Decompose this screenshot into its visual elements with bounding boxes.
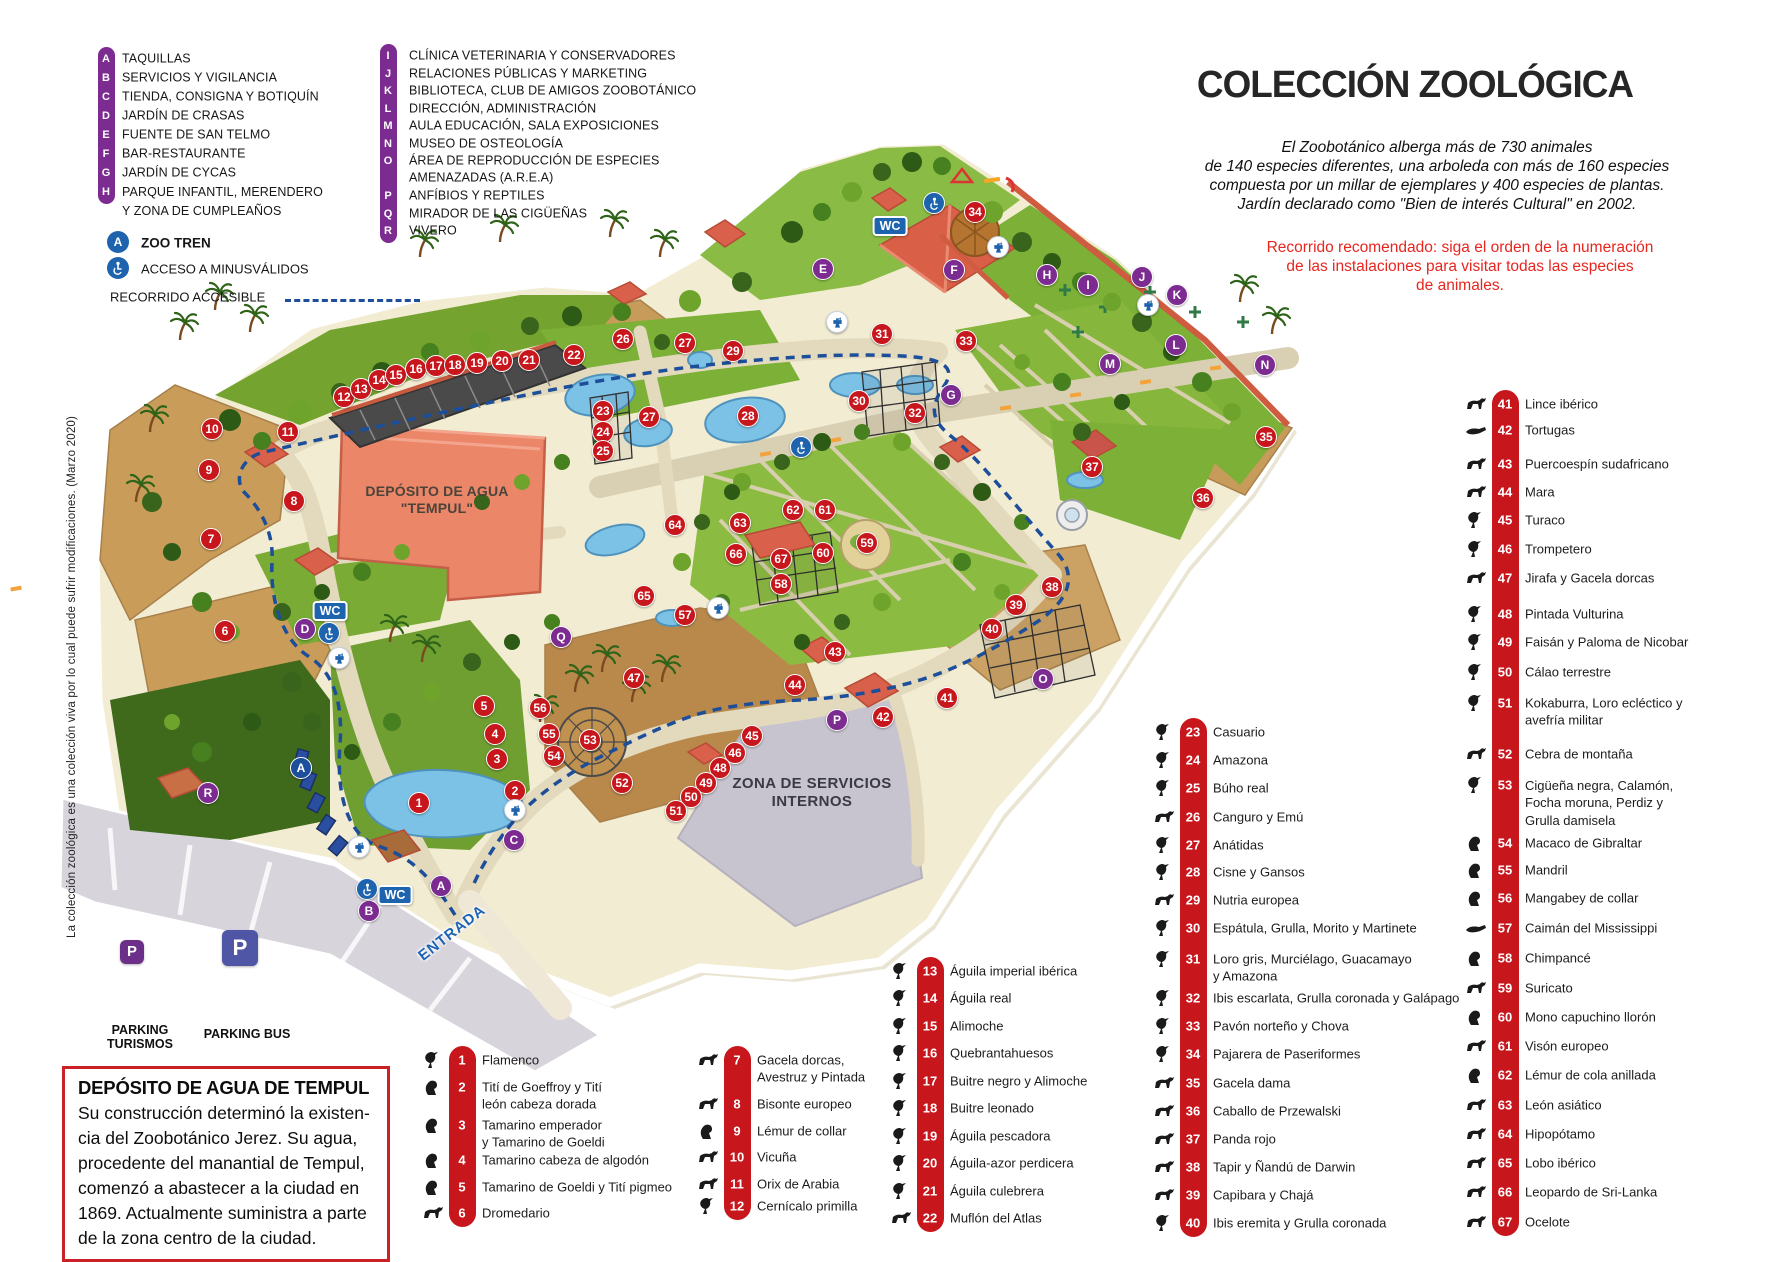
species-label-37: Panda rojo (1213, 1130, 1276, 1148)
primate-silhouette-icon (422, 1150, 444, 1170)
map-marker-54: 54 (543, 745, 565, 767)
wheelchair-icon (356, 878, 378, 900)
species-label-46: Trompetero (1525, 540, 1592, 558)
map-marker-40: 40 (981, 618, 1003, 640)
legend-letter-B: B (98, 72, 115, 84)
species-number-5: 5 (449, 1180, 476, 1195)
mammal-silhouette-icon (1465, 1153, 1487, 1173)
species-number-51: 51 (1492, 696, 1519, 711)
species-number-2: 2 (449, 1080, 476, 1095)
route-note-line: Recorrido recomendado: siga el orden de … (1180, 238, 1740, 257)
mammal-silhouette-icon (1465, 394, 1487, 414)
mammal-silhouette-icon (1465, 744, 1487, 764)
map-marker-23: 23 (592, 400, 614, 422)
bird-silhouette-icon (1153, 1016, 1175, 1036)
mammal-silhouette-icon (1153, 890, 1175, 910)
water-faucet-icon (328, 647, 350, 669)
bird-silhouette-icon (1153, 918, 1175, 938)
route-note-line: de animales. (1180, 276, 1740, 295)
species-label-17: Buitre negro y Alimoche (950, 1072, 1087, 1090)
species-label-62: Lémur de cola anillada (1525, 1066, 1656, 1084)
map-marker-56: 56 (529, 697, 551, 719)
map-marker-34: 34 (964, 201, 986, 223)
species-number-8: 8 (724, 1097, 751, 1112)
map-marker-33: 33 (955, 330, 977, 352)
map-marker-15: 15 (385, 364, 407, 386)
bird-silhouette-icon (1465, 510, 1487, 530)
map-letter-B: B (358, 900, 380, 922)
bird-silhouette-icon (1465, 662, 1487, 682)
species-number-38: 38 (1180, 1160, 1207, 1175)
bird-silhouette-icon (1465, 693, 1487, 713)
species-label-6: Dromedario (482, 1204, 550, 1222)
map-marker-9: 9 (198, 459, 220, 481)
species-number-15: 15 (917, 1019, 944, 1034)
legend-item-C: TIENDA, CONSIGNA Y BOTIQUÍN (122, 88, 319, 107)
species-number-50: 50 (1492, 665, 1519, 680)
wc-badge: WC (873, 216, 908, 236)
species-number-29: 29 (1180, 893, 1207, 908)
species-number-47: 47 (1492, 571, 1519, 586)
primate-silhouette-icon (697, 1121, 719, 1141)
map-marker-65: 65 (633, 585, 655, 607)
primate-silhouette-icon (1465, 860, 1487, 880)
species-number-67: 67 (1492, 1215, 1519, 1230)
mammal-silhouette-icon (1153, 1157, 1175, 1177)
species-label-20: Águila-azor perdicera (950, 1154, 1074, 1172)
species-number-18: 18 (917, 1101, 944, 1116)
species-label-38: Tapir y Ñandú de Darwin (1213, 1158, 1355, 1176)
legend-item-M: AULA EDUCACIÓN, SALA EXPOSICIONES (409, 117, 659, 135)
species-label-25: Búho real (1213, 779, 1269, 797)
map-letter-P: P (826, 709, 848, 731)
species-label-54: Macaco de Gibraltar (1525, 834, 1642, 852)
species-label-10: Vicuña (757, 1148, 797, 1166)
species-number-36: 36 (1180, 1104, 1207, 1119)
map-marker-51: 51 (665, 800, 687, 822)
species-label-7: Gacela dorcas, Avestruz y Pintada (757, 1051, 865, 1086)
bird-silhouette-icon (890, 1098, 912, 1118)
water-faucet-icon (504, 799, 526, 821)
map-letter-F: F (943, 259, 965, 281)
species-number-46: 46 (1492, 542, 1519, 557)
map-letter-C: C (503, 829, 525, 851)
mammal-silhouette-icon (1153, 807, 1175, 827)
recorrido-label: RECORRIDO ACCESIBLE (110, 290, 265, 305)
mammal-silhouette-icon (1153, 1073, 1175, 1093)
species-number-20: 20 (917, 1156, 944, 1171)
bird-silhouette-icon (1465, 604, 1487, 624)
map-marker-62: 62 (782, 499, 804, 521)
species-label-16: Quebrantahuesos (950, 1044, 1053, 1062)
map-letter-O: O (1032, 668, 1054, 690)
bird-silhouette-icon (1153, 1213, 1175, 1233)
species-number-58: 58 (1492, 951, 1519, 966)
species-label-24: Amazona (1213, 751, 1268, 769)
species-number-9: 9 (724, 1124, 751, 1139)
species-number-6: 6 (449, 1206, 476, 1221)
map-marker-42: 42 (872, 706, 894, 728)
map-letter-D: D (294, 618, 316, 640)
species-bar-1 (449, 1046, 476, 1227)
acceso-label: ACCESO A MINUSVÁLIDOS (141, 262, 309, 277)
legend-letter-L: L (380, 103, 397, 115)
legend-item-K: BIBLIOTECA, CLUB DE AMIGOS ZOOBOTÁNICO (409, 82, 696, 100)
legend-letter-G: G (98, 167, 115, 179)
route-dash-sample (285, 299, 420, 302)
species-label-2: Tití de Goeffroy y Tití león cabeza dora… (482, 1078, 602, 1113)
mammal-silhouette-icon (1465, 978, 1487, 998)
wheelchair-icon (923, 192, 945, 214)
bird-silhouette-icon (890, 1071, 912, 1091)
bird-silhouette-icon (1153, 722, 1175, 742)
mammal-silhouette-icon (1465, 568, 1487, 588)
legend-letter-F: F (98, 148, 115, 160)
species-label-66: Leopardo de Sri-Lanka (1525, 1183, 1657, 1201)
zona-servicios-label: ZONA DE SERVICIOS INTERNOS (732, 775, 891, 811)
species-number-12: 12 (724, 1199, 751, 1214)
bird-silhouette-icon (890, 1153, 912, 1173)
species-label-14: Águila real (950, 989, 1011, 1007)
bird-silhouette-icon (890, 1043, 912, 1063)
zoo-tren-badge: A (107, 231, 129, 253)
species-number-42: 42 (1492, 423, 1519, 438)
parking-turismos-label: PARKING TURISMOS (107, 1023, 173, 1051)
legend-letter-K: K (380, 85, 397, 97)
bird-silhouette-icon (1153, 835, 1175, 855)
species-label-47: Jirafa y Gacela dorcas (1525, 569, 1654, 587)
map-letter-Q: Q (550, 626, 572, 648)
mammal-silhouette-icon (697, 1094, 719, 1114)
mammal-silhouette-icon (1153, 1129, 1175, 1149)
map-marker-16: 16 (405, 358, 427, 380)
map-letter-J: J (1131, 266, 1153, 288)
map-marker-38: 38 (1041, 576, 1063, 598)
legend-item-O: ÁREA DE REPRODUCCIÓN DE ESPECIES AMENAZA… (409, 152, 659, 187)
species-label-56: Mangabey de collar (1525, 889, 1638, 907)
species-label-28: Cisne y Gansos (1213, 863, 1305, 881)
mammal-silhouette-icon (1465, 454, 1487, 474)
species-number-27: 27 (1180, 838, 1207, 853)
water-faucet-icon (348, 836, 370, 858)
species-label-55: Mandril (1525, 861, 1568, 879)
route-note: Recorrido recomendado: siga el orden de … (1180, 238, 1740, 295)
species-label-19: Águila pescadora (950, 1127, 1050, 1145)
species-number-56: 56 (1492, 891, 1519, 906)
species-number-55: 55 (1492, 863, 1519, 878)
species-number-24: 24 (1180, 753, 1207, 768)
species-number-35: 35 (1180, 1076, 1207, 1091)
species-number-3: 3 (449, 1118, 476, 1133)
poster: TAQUILLASSERVICIOS Y VIGILANCIATIENDA, C… (0, 0, 1790, 1259)
primate-silhouette-icon (422, 1177, 444, 1197)
map-marker-47: 47 (623, 667, 645, 689)
map-marker-66: 66 (725, 543, 747, 565)
map-marker-19: 19 (466, 352, 488, 374)
map-marker-35: 35 (1255, 426, 1277, 448)
water-faucet-icon (987, 236, 1009, 258)
species-number-34: 34 (1180, 1047, 1207, 1062)
legend-letter-H: H (98, 186, 115, 198)
intro-text: El Zoobotánico alberga más de 730 animal… (1157, 138, 1717, 214)
map-marker-37: 37 (1081, 456, 1103, 478)
deposito-label: DEPÓSITO DE AGUA "TEMPUL" (365, 483, 508, 517)
map-marker-27: 27 (638, 406, 660, 428)
map-letter-N: N (1254, 354, 1276, 376)
species-number-65: 65 (1492, 1156, 1519, 1171)
legend-item-R: VIVERO (409, 222, 457, 240)
map-marker-3: 3 (486, 748, 508, 770)
species-label-15: Alimoche (950, 1017, 1003, 1035)
map-letter-M: M (1099, 353, 1121, 375)
species-label-11: Orix de Arabia (757, 1175, 839, 1193)
species-label-9: Lémur de collar (757, 1122, 847, 1140)
species-label-59: Suricato (1525, 979, 1573, 997)
species-label-39: Capibara y Chajá (1213, 1186, 1313, 1204)
species-label-40: Ibis eremita y Grulla coronada (1213, 1214, 1386, 1232)
map-marker-28: 28 (737, 405, 759, 427)
map-marker-60: 60 (812, 542, 834, 564)
species-number-26: 26 (1180, 810, 1207, 825)
species-label-64: Hipopótamo (1525, 1125, 1595, 1143)
species-number-57: 57 (1492, 921, 1519, 936)
legend-item-J: RELACIONES PÚBLICAS Y MARKETING (409, 65, 647, 83)
species-number-44: 44 (1492, 485, 1519, 500)
map-marker-27: 27 (674, 332, 696, 354)
species-label-60: Mono capuchino llorón (1525, 1008, 1656, 1026)
species-label-8: Bisonte europeo (757, 1095, 852, 1113)
mammal-silhouette-icon (1153, 1101, 1175, 1121)
reptile-silhouette-icon (1465, 420, 1487, 440)
species-number-43: 43 (1492, 457, 1519, 472)
species-number-54: 54 (1492, 836, 1519, 851)
legend-item-F: BAR-RESTAURANTE (122, 145, 246, 164)
tempul-info-box: DEPÓSITO DE AGUA DE TEMPUL Su construcci… (62, 1066, 390, 1262)
species-label-65: Lobo ibérico (1525, 1154, 1596, 1172)
map-marker-44: 44 (784, 674, 806, 696)
map-letter-I: I (1077, 274, 1099, 296)
legend-item-E: FUENTE DE SAN TELMO (122, 126, 270, 145)
map-marker-45: 45 (741, 725, 763, 747)
map-marker-61: 61 (814, 499, 836, 521)
legend-item-Q: MIRADOR DE LAS CIGÜEÑAS (409, 205, 587, 223)
parking-icon: P (120, 940, 144, 964)
species-number-52: 52 (1492, 747, 1519, 762)
legend-item-G: JARDÍN DE CYCAS (122, 164, 236, 183)
map-marker-67: 67 (770, 548, 792, 570)
map-marker-21: 21 (518, 349, 540, 371)
map-marker-18: 18 (444, 354, 466, 376)
species-label-22: Muflón del Atlas (950, 1209, 1042, 1227)
wheelchair-icon (107, 257, 129, 279)
intro-line: de 140 especies diferentes, una arboleda… (1157, 157, 1717, 176)
species-label-57: Caimán del Mississippi (1525, 919, 1657, 937)
bird-silhouette-icon (422, 1050, 444, 1070)
bird-silhouette-icon (697, 1196, 719, 1216)
legend-letter-A: A (98, 53, 115, 65)
map-marker-43: 43 (824, 641, 846, 663)
mammal-silhouette-icon (1465, 1182, 1487, 1202)
species-number-11: 11 (724, 1177, 751, 1192)
species-label-43: Puercoespín sudafricano (1525, 455, 1669, 473)
water-faucet-icon (707, 597, 729, 619)
bird-silhouette-icon (1153, 949, 1175, 969)
species-number-30: 30 (1180, 921, 1207, 936)
species-number-64: 64 (1492, 1127, 1519, 1142)
map-marker-29: 29 (722, 340, 744, 362)
primate-silhouette-icon (1465, 948, 1487, 968)
water-faucet-icon (826, 311, 848, 333)
species-label-31: Loro gris, Murciélago, Guacamayo y Amazo… (1213, 950, 1412, 985)
primate-silhouette-icon (422, 1115, 444, 1135)
map-marker-31: 31 (871, 323, 893, 345)
map-marker-63: 63 (729, 512, 751, 534)
species-number-31: 31 (1180, 952, 1207, 967)
map-marker-52: 52 (611, 772, 633, 794)
bird-silhouette-icon (1153, 778, 1175, 798)
bird-silhouette-icon (890, 1016, 912, 1036)
species-label-4: Tamarino cabeza de algodón (482, 1151, 649, 1169)
species-label-30: Espátula, Grulla, Morito y Martinete (1213, 919, 1417, 937)
species-number-19: 19 (917, 1129, 944, 1144)
water-faucet-icon (1137, 294, 1159, 316)
species-label-41: Lince ibérico (1525, 395, 1598, 413)
map-marker-41: 41 (936, 687, 958, 709)
mammal-silhouette-icon (1465, 1095, 1487, 1115)
wc-badge: WC (378, 885, 413, 905)
legend-item-L: DIRECCIÓN, ADMINISTRACIÓN (409, 100, 596, 118)
species-label-5: Tamarino de Goeldi y Tití pigmeo (482, 1178, 672, 1196)
species-number-40: 40 (1180, 1216, 1207, 1231)
map-marker-1: 1 (408, 792, 430, 814)
species-label-32: Ibis escarlata, Grulla coronada y Galápa… (1213, 989, 1459, 1007)
map-marker-6: 6 (214, 620, 236, 642)
legend-item-A: TAQUILLAS (122, 50, 191, 69)
species-label-36: Caballo de Przewalski (1213, 1102, 1341, 1120)
zoo-tren-label: ZOO TREN (141, 236, 211, 251)
legend-item-P: ANFÍBIOS Y REPTILES (409, 187, 545, 205)
species-number-13: 13 (917, 964, 944, 979)
species-number-60: 60 (1492, 1010, 1519, 1025)
tempul-info-title: DEPÓSITO DE AGUA DE TEMPUL (78, 1077, 374, 1099)
legend-letter-J: J (380, 68, 397, 80)
map-letter-R: R (197, 782, 219, 804)
mammal-silhouette-icon (1465, 482, 1487, 502)
bird-silhouette-icon (1465, 539, 1487, 559)
species-number-49: 49 (1492, 635, 1519, 650)
species-number-23: 23 (1180, 725, 1207, 740)
map-letter-K: K (1166, 284, 1188, 306)
species-label-67: Ocelote (1525, 1213, 1570, 1231)
map-marker-11: 11 (277, 421, 299, 443)
bird-silhouette-icon (1153, 750, 1175, 770)
mammal-silhouette-icon (1465, 1212, 1487, 1232)
tempul-info-body: Su construcción determinó la existen- ci… (78, 1101, 374, 1251)
map-letter-G: G (940, 384, 962, 406)
map-marker-32: 32 (904, 402, 926, 424)
species-number-66: 66 (1492, 1185, 1519, 1200)
mammal-silhouette-icon (422, 1203, 444, 1223)
map-letter-E: E (812, 258, 834, 280)
legend-letter-N: N (380, 138, 397, 150)
map-marker-64: 64 (664, 514, 686, 536)
species-number-45: 45 (1492, 513, 1519, 528)
legend-item-H: PARQUE INFANTIL, MERENDERO Y ZONA DE CUM… (122, 183, 323, 221)
species-number-62: 62 (1492, 1068, 1519, 1083)
species-label-23: Casuario (1213, 723, 1265, 741)
page-title: COLECCIÓN ZOOLÓGICA (1163, 64, 1667, 107)
map-letter-H: H (1036, 264, 1058, 286)
bird-silhouette-icon (890, 1181, 912, 1201)
mammal-silhouette-icon (697, 1174, 719, 1194)
legend-letter-M: M (380, 120, 397, 132)
map-marker-26: 26 (612, 328, 634, 350)
species-label-61: Visón europeo (1525, 1037, 1609, 1055)
legend-item-N: MUSEO DE OSTEOLOGÍA (409, 135, 563, 153)
map-marker-55: 55 (538, 723, 560, 745)
map-letter-A: A (430, 875, 452, 897)
map-marker-30: 30 (848, 390, 870, 412)
species-label-44: Mara (1525, 483, 1555, 501)
legend-letter-D: D (98, 110, 115, 122)
map-marker-57: 57 (674, 604, 696, 626)
species-number-59: 59 (1492, 981, 1519, 996)
bird-silhouette-icon (1465, 775, 1487, 795)
mammal-silhouette-icon (697, 1050, 719, 1070)
species-label-42: Tortugas (1525, 421, 1575, 439)
legend-letter-C: C (98, 91, 115, 103)
legend-letter-E: E (98, 129, 115, 141)
legend-item-B: SERVICIOS Y VIGILANCIA (122, 69, 277, 88)
species-label-3: Tamarino emperador y Tamarino de Goeldi (482, 1116, 605, 1151)
intro-line: El Zoobotánico alberga más de 730 animal… (1157, 138, 1717, 157)
primate-silhouette-icon (1465, 1065, 1487, 1085)
map-marker-25: 25 (592, 440, 614, 462)
species-number-33: 33 (1180, 1019, 1207, 1034)
species-label-49: Faisán y Paloma de Nicobar (1525, 633, 1688, 651)
species-number-14: 14 (917, 991, 944, 1006)
species-label-18: Buitre leonado (950, 1099, 1034, 1117)
mammal-silhouette-icon (1465, 1124, 1487, 1144)
mammal-silhouette-icon (890, 1208, 912, 1228)
legend-capsule-1 (98, 47, 115, 204)
bird-silhouette-icon (890, 988, 912, 1008)
map-marker-20: 20 (491, 350, 513, 372)
bird-silhouette-icon (1153, 862, 1175, 882)
species-number-1: 1 (449, 1053, 476, 1068)
species-number-4: 4 (449, 1153, 476, 1168)
parking-bus-label: PARKING BUS (204, 1027, 291, 1041)
species-label-27: Anátidas (1213, 836, 1264, 854)
species-number-28: 28 (1180, 865, 1207, 880)
species-label-51: Kokaburra, Loro ecléctico y avefría mili… (1525, 694, 1683, 729)
bird-silhouette-icon (890, 961, 912, 981)
species-number-7: 7 (724, 1053, 751, 1068)
species-label-34: Pajarera de Paseriformes (1213, 1045, 1360, 1063)
mammal-silhouette-icon (697, 1147, 719, 1167)
legend-item-D: JARDÍN DE CRASAS (122, 107, 244, 126)
species-number-41: 41 (1492, 397, 1519, 412)
species-label-29: Nutria europea (1213, 891, 1299, 909)
species-number-61: 61 (1492, 1039, 1519, 1054)
species-number-63: 63 (1492, 1098, 1519, 1113)
species-number-25: 25 (1180, 781, 1207, 796)
species-label-52: Cebra de montaña (1525, 745, 1633, 763)
primate-silhouette-icon (422, 1077, 444, 1097)
mammal-silhouette-icon (1465, 1036, 1487, 1056)
legend-letter-Q: Q (380, 208, 397, 220)
species-number-37: 37 (1180, 1132, 1207, 1147)
